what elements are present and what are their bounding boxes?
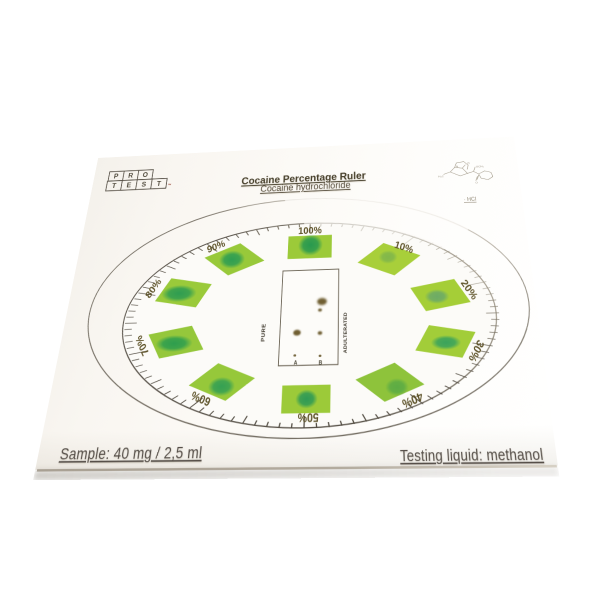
svg-text:E: E xyxy=(126,182,132,190)
svg-text:O: O xyxy=(475,181,478,184)
svg-text:H₃C: H₃C xyxy=(438,175,444,178)
svg-text:S: S xyxy=(141,181,147,189)
svg-text:Sample: 40 mg / 2,5 ml: Sample: 40 mg / 2,5 ml xyxy=(58,445,203,465)
svg-text:ADULTERATED: ADULTERATED xyxy=(343,312,348,353)
svg-text:OCH₃: OCH₃ xyxy=(476,165,484,168)
svg-text:50%: 50% xyxy=(297,410,318,425)
svg-text:™: ™ xyxy=(167,183,172,188)
svg-text:T: T xyxy=(111,182,117,190)
svg-text:P: P xyxy=(113,173,119,181)
svg-text:A: A xyxy=(294,360,298,366)
svg-text:O: O xyxy=(467,162,470,165)
svg-text:N: N xyxy=(456,165,459,168)
svg-text:100%: 100% xyxy=(298,224,322,236)
svg-text:R: R xyxy=(128,172,135,180)
svg-text:Testing liquid: methanol: Testing liquid: methanol xyxy=(400,446,545,465)
svg-text:· HCl: · HCl xyxy=(464,196,477,203)
svg-text:T: T xyxy=(156,180,162,188)
svg-text:PURE: PURE xyxy=(259,323,266,342)
svg-text:O: O xyxy=(142,171,149,179)
svg-text:B: B xyxy=(319,360,323,366)
